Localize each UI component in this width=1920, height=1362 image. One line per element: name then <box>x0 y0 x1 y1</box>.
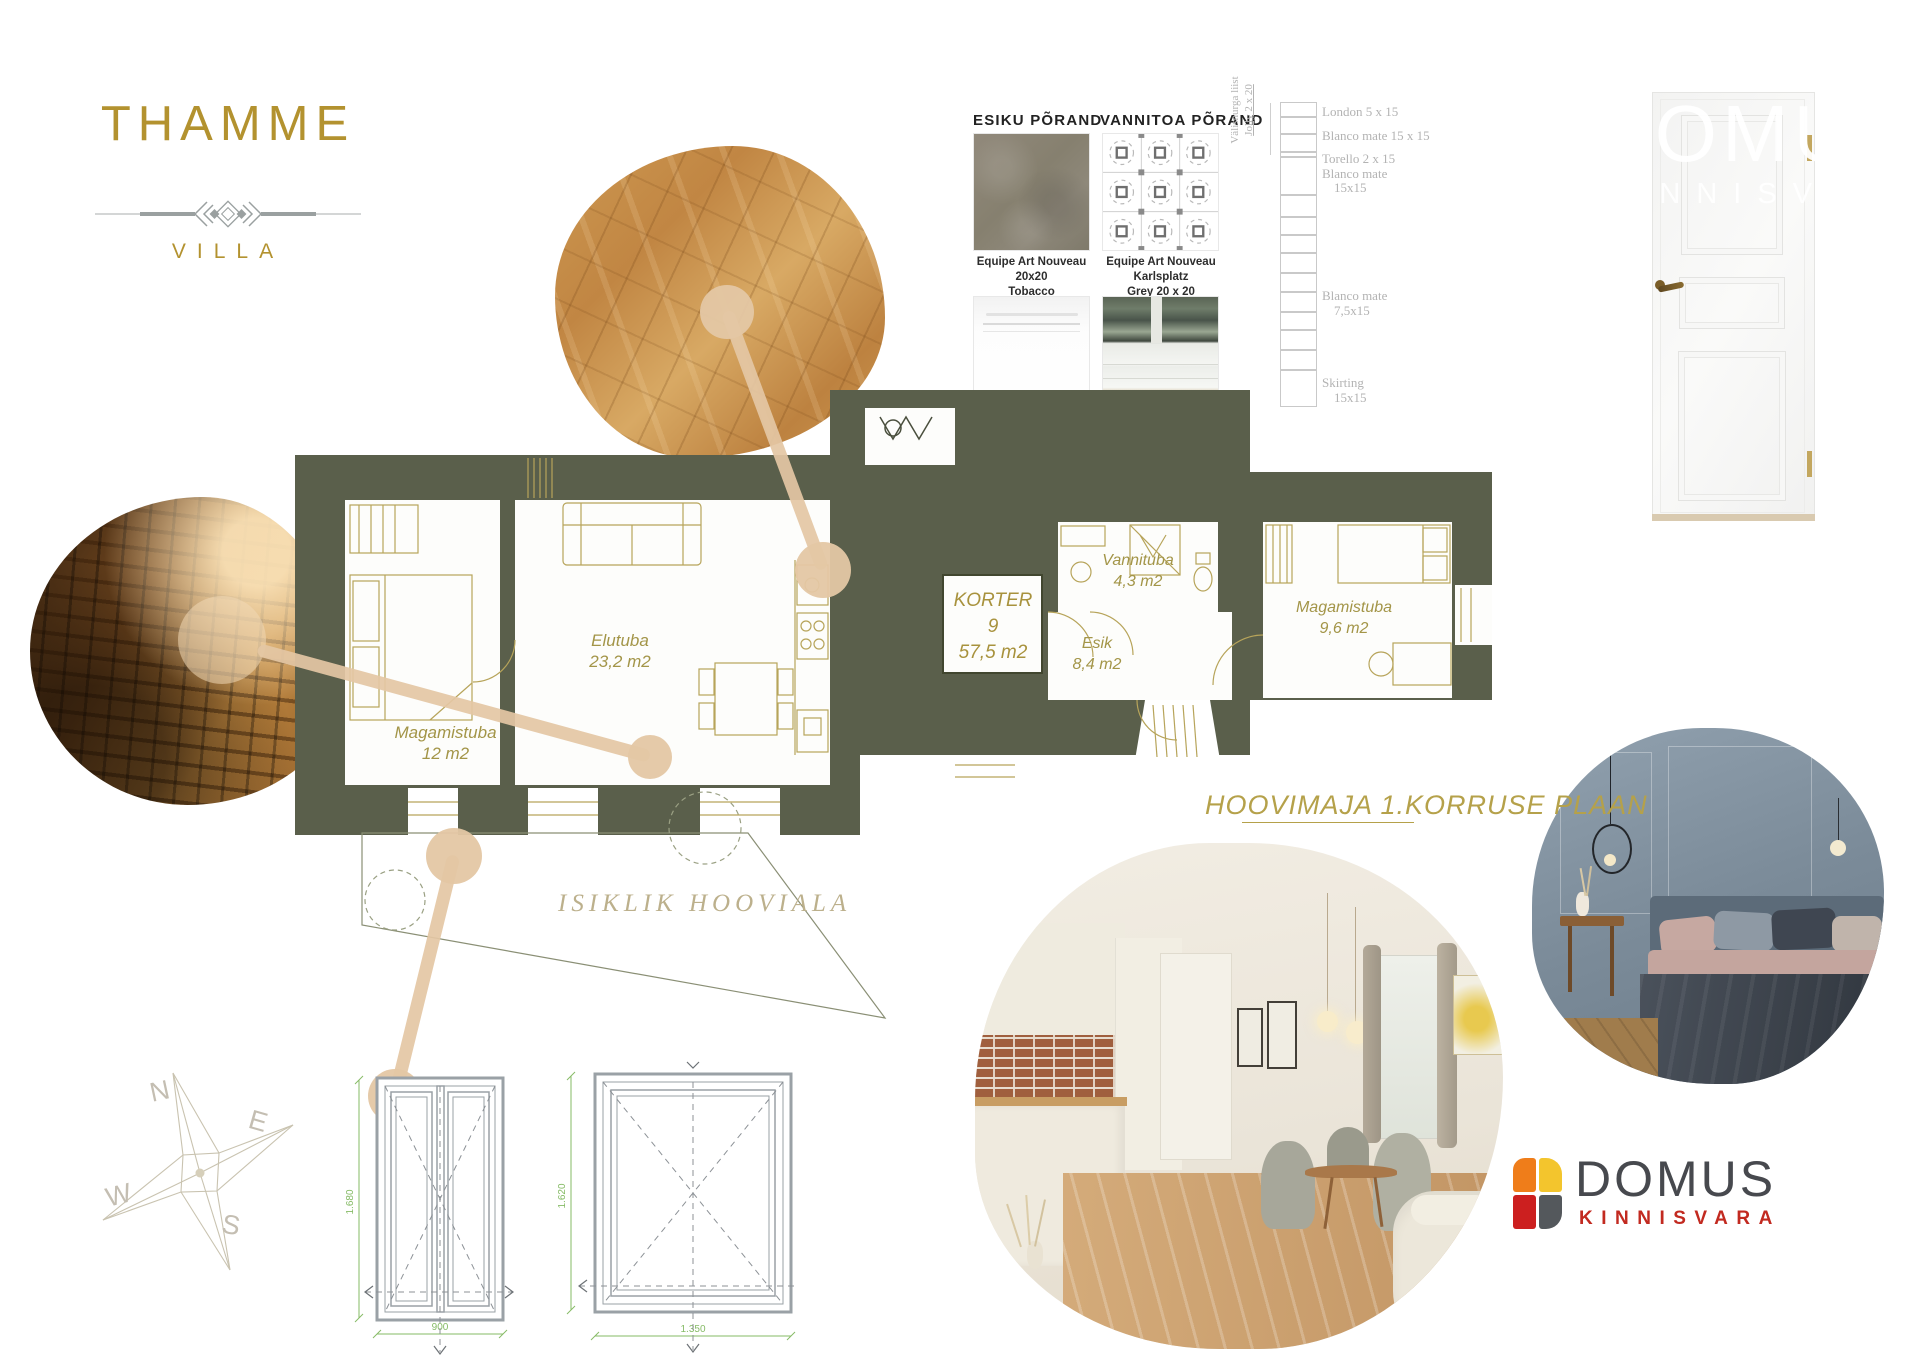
door-floor-shadow <box>1652 514 1815 521</box>
tile-strip-cell <box>1280 330 1317 350</box>
tile-strip-cell <box>1280 134 1317 152</box>
tile-strip-cell <box>1280 273 1317 292</box>
connector-dot <box>700 285 754 339</box>
yard-label: ISIKLIK HOOVIALA <box>558 890 851 918</box>
pendant-ring-lamp <box>1592 824 1632 874</box>
tile-strip-label: Blanco mate <box>1322 288 1387 304</box>
domus-logo-name: DOMUS <box>1575 1150 1776 1208</box>
vannitoa-tile-sample <box>1102 133 1219 251</box>
plan-title-underline <box>1242 822 1414 823</box>
window-elevation-2: 1.620 1.350 <box>555 1058 805 1362</box>
tile-strip-cell <box>1280 195 1317 217</box>
pillow <box>1771 907 1837 950</box>
esiku-tile-caption: Equipe Art Nouveau 20x20 Tobacco <box>963 255 1100 300</box>
tile-strip-cell <box>1280 312 1317 330</box>
watermark-domus: DOMUS <box>1592 88 1915 180</box>
door-panel <box>1678 351 1786 501</box>
lamp-bulb <box>1830 840 1846 856</box>
pillow <box>1713 910 1775 951</box>
tile-strip-cell <box>1280 292 1317 312</box>
wall-molding <box>1668 746 1812 898</box>
esiku-floor-header: ESIKU PÕRAND <box>973 112 1102 129</box>
connector-dot <box>628 735 672 779</box>
sofa-cushion <box>1411 1195 1491 1225</box>
room-label-bedroom2: Magamistuba 9,6 m2 <box>1265 597 1423 639</box>
door-panel <box>1679 277 1785 329</box>
tile-strip-label: 15x15 <box>1334 180 1367 196</box>
window-elevation-1: 1.680 900 <box>345 1062 515 1362</box>
tile-strip-cell <box>1280 350 1317 370</box>
dining-chair <box>1261 1141 1315 1229</box>
nightstand <box>1560 916 1624 926</box>
room-label-living: Elutuba 23,2 m2 <box>545 630 695 672</box>
room-label-bedroom1: Magamistuba 12 m2 <box>368 722 523 764</box>
lamp-bulb <box>1604 854 1616 866</box>
window2-height-dim: 1.620 <box>557 1183 568 1208</box>
room-label-hall: Esik 8,4 m2 <box>1038 633 1156 675</box>
nightstand-leg <box>1610 926 1614 996</box>
vannitoa-tile-caption: Equipe Art Nouveau Karlsplatz Grey 20 x … <box>1095 255 1227 300</box>
tile-strip-label: London 5 x 15 <box>1322 104 1398 120</box>
villa-logo-title: THAMME <box>88 96 368 152</box>
tile-strip-label: 7,5x15 <box>1334 303 1370 319</box>
bed-blanket <box>1640 974 1884 1084</box>
tile-strip-cell <box>1280 102 1317 117</box>
wood-floor <box>1532 1018 1658 1084</box>
lamp-cord <box>1838 798 1839 842</box>
connector-soft-dot <box>178 596 266 684</box>
plan-title: HOOVIMAJA 1.KORRUSE PLAAN <box>1205 790 1648 821</box>
villa-logo-subtitle: VILLA <box>88 240 368 264</box>
room-label-bathroom: Vannituba 4,3 m2 <box>1060 550 1216 592</box>
window1-height-dim: 1.680 <box>345 1189 356 1214</box>
apartment-info-box: KORTER 9 57,5 m2 <box>944 588 1042 666</box>
tile-strip-label: Torello 2 x 15 <box>1322 151 1395 167</box>
tile-strip-cell <box>1280 157 1317 195</box>
tile-strip-cell <box>1280 253 1317 273</box>
tree-icon <box>365 870 425 930</box>
moodboard-canvas: THAMME VILLA ESIKU PÕRAND VANNITOA PÕRAN… <box>0 0 1920 1362</box>
door-hinge-icon <box>1807 451 1812 477</box>
dining-table <box>1305 1165 1397 1178</box>
tile-strip-rule <box>1270 103 1271 155</box>
watermark-kinnisvara: KINNISVARA <box>1600 178 1920 211</box>
bedroom-photo <box>1532 728 1884 1084</box>
logo-divider-ornament-icon <box>95 196 361 232</box>
nightstand-leg <box>1568 926 1572 992</box>
tile-strip-cell <box>1280 117 1317 134</box>
tile-strip-side-label: Välisnurga liist Jolly 2 x 20 <box>1228 50 1256 170</box>
tile-strip-cell <box>1280 217 1317 235</box>
pillow <box>1832 916 1882 952</box>
esiku-tile-sample <box>973 133 1090 251</box>
tile-strip-cell <box>1280 235 1317 253</box>
kitchen-counter <box>975 1097 1127 1106</box>
connector-dot <box>795 542 851 598</box>
compass-icon <box>95 1065 310 1280</box>
domus-logo-subtitle: KINNISVARA <box>1579 1208 1781 1230</box>
tile-strip-label: Blanco mate 15 x 15 <box>1322 128 1430 144</box>
